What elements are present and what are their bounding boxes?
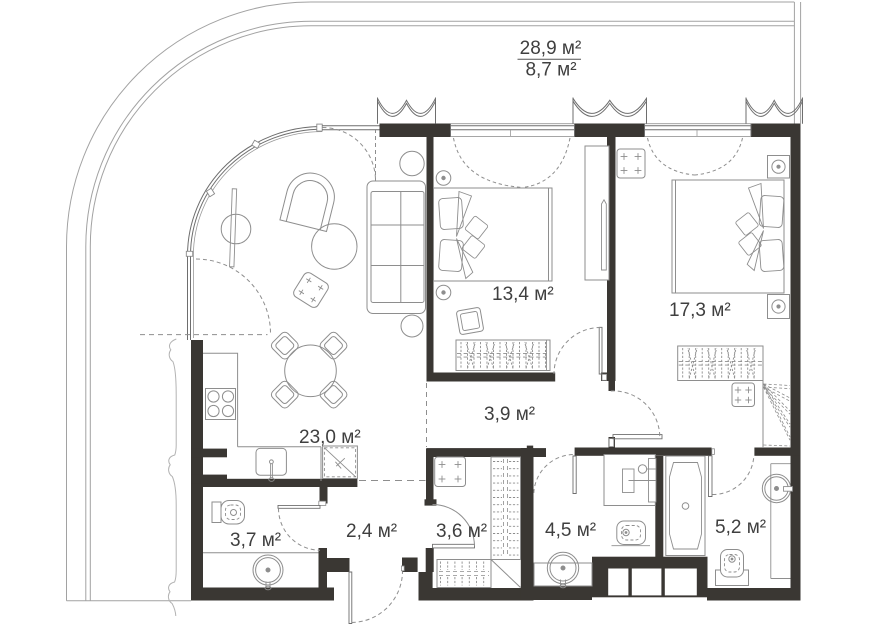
svg-text:28,9 м²: 28,9 м² <box>520 38 582 59</box>
svg-text:2,4 м²: 2,4 м² <box>346 521 397 542</box>
svg-text:5,2 м²: 5,2 м² <box>715 517 766 538</box>
svg-text:13,4 м²: 13,4 м² <box>492 284 554 305</box>
svg-text:4,5 м²: 4,5 м² <box>545 520 596 541</box>
svg-text:3,7 м²: 3,7 м² <box>230 530 281 551</box>
svg-text:3,6 м²: 3,6 м² <box>436 521 487 542</box>
svg-text:23,0 м²: 23,0 м² <box>299 427 361 448</box>
svg-text:3,9 м²: 3,9 м² <box>484 404 535 425</box>
svg-text:17,3 м²: 17,3 м² <box>669 300 731 321</box>
svg-text:8,7 м²: 8,7 м² <box>525 60 576 81</box>
